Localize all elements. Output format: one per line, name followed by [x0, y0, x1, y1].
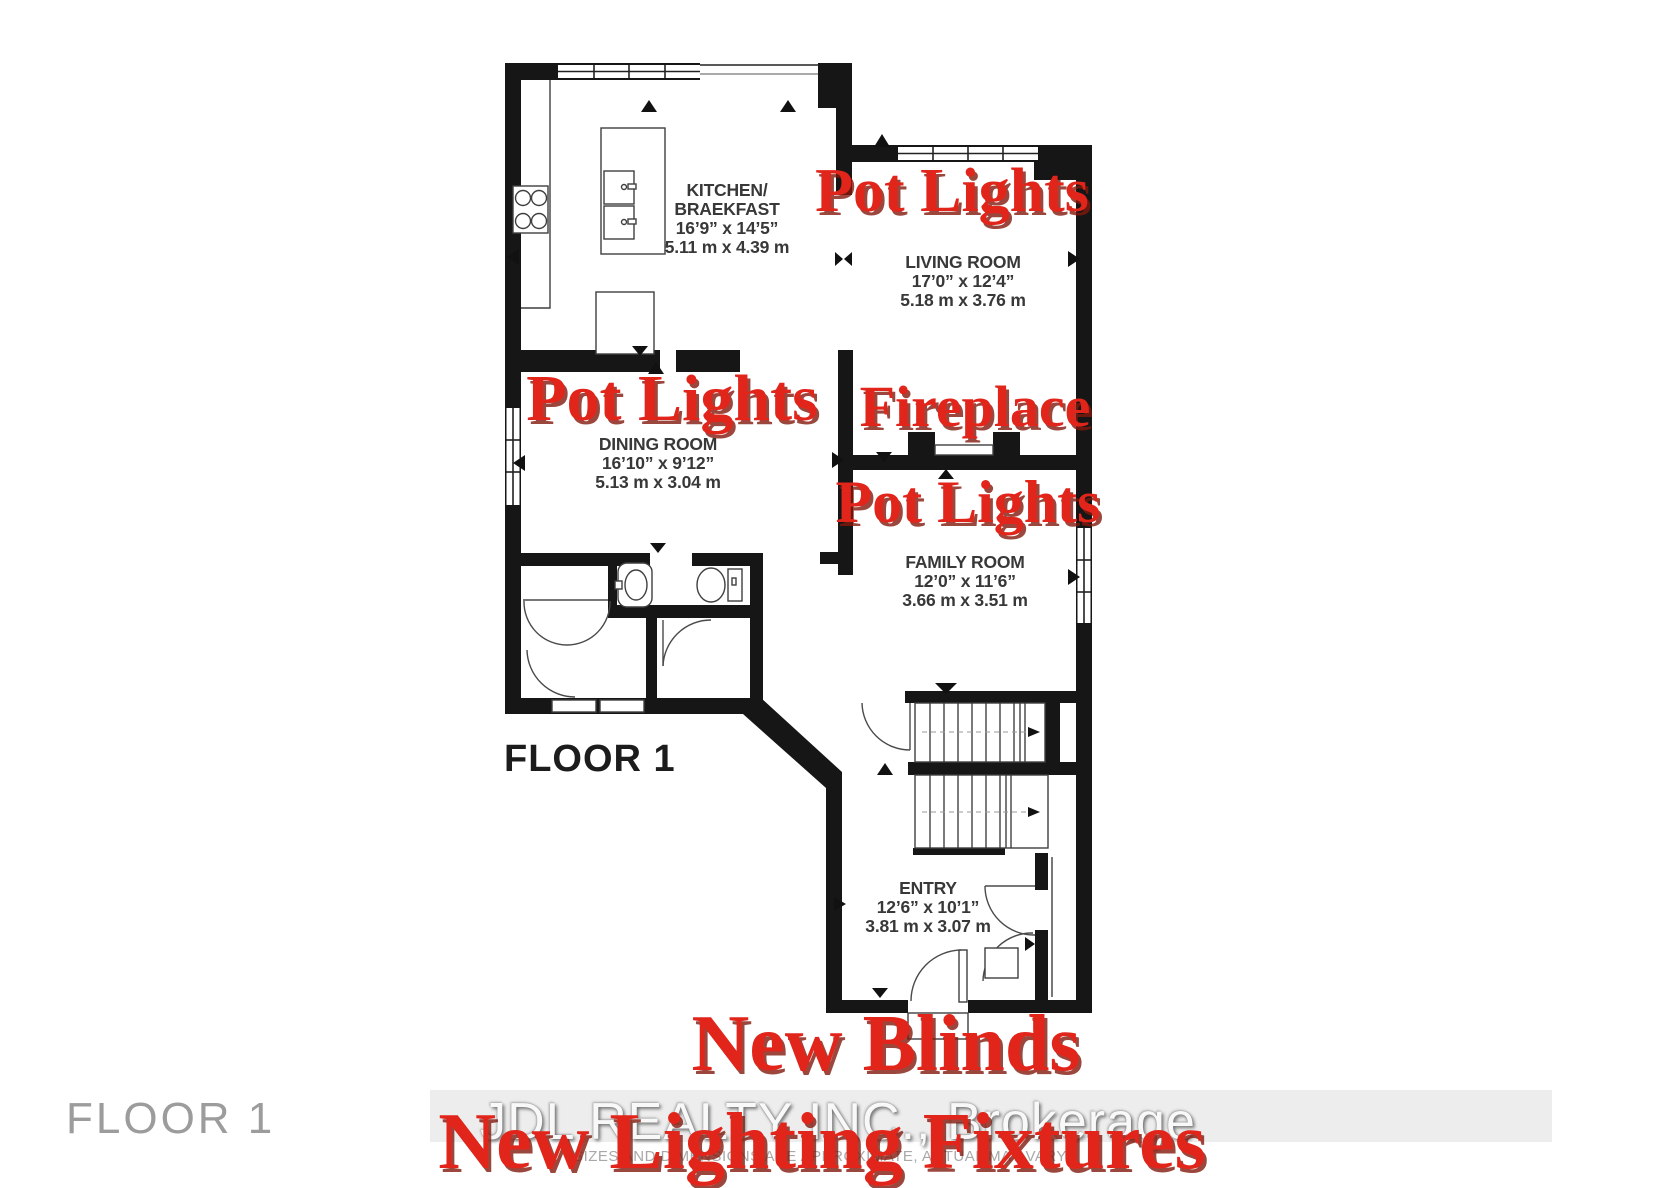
kitchen-metric: 5.11 m x 4.39 m [665, 237, 789, 257]
living-metric: 5.18 m x 3.76 m [900, 290, 1025, 310]
room-label-entry: ENTRY 12’6” x 10’1” 3.81 m x 3.07 m [865, 879, 990, 936]
room-label-dining: DINING ROOM 16’10” x 9’12” 5.13 m x 3.04… [595, 435, 720, 492]
entry-imperial: 12’6” x 10’1” [877, 897, 979, 917]
dining-name: DINING ROOM [599, 434, 717, 454]
direction-markers [507, 100, 1080, 998]
dining-imperial: 16’10” x 9’12” [602, 453, 714, 473]
annotation-pot-lights-living: Pot Lights [815, 160, 1089, 222]
kitchen-fixtures [513, 80, 665, 354]
annotation-new-blinds: New Blinds [692, 1004, 1081, 1084]
floor-label-corner: FLOOR 1 [66, 1094, 275, 1144]
kitchen-name-line2: BRAEKFAST [674, 199, 779, 219]
entry-metric: 3.81 m x 3.07 m [865, 916, 990, 936]
entry-name: ENTRY [899, 878, 957, 898]
floor-plan-page: KITCHEN/ BRAEKFAST 16’9” x 14’5” 5.11 m … [0, 0, 1680, 1188]
room-label-kitchen: KITCHEN/ BRAEKFAST 16’9” x 14’5” 5.11 m … [665, 181, 789, 257]
dining-metric: 5.13 m x 3.04 m [595, 472, 720, 492]
living-imperial: 17’0” x 12’4” [912, 271, 1014, 291]
room-label-family: FAMILY ROOM 12’0” x 11’6” 3.66 m x 3.51 … [902, 553, 1027, 610]
room-label-living: LIVING ROOM 17’0” x 12’4” 5.18 m x 3.76 … [900, 253, 1025, 310]
annotation-new-lighting-fixtures: New Lighting Fixtures [438, 1102, 1205, 1182]
annotation-pot-lights-dining: Pot Lights [526, 366, 818, 432]
annotation-fireplace: Fireplace [860, 378, 1091, 436]
annotation-pot-lights-family: Pot Lights [835, 472, 1100, 532]
bathroom-fixtures [615, 563, 742, 607]
family-imperial: 12’0” x 11’6” [914, 571, 1016, 591]
kitchen-imperial: 16’9” x 14’5” [676, 218, 778, 238]
family-metric: 3.66 m x 3.51 m [902, 590, 1027, 610]
living-name: LIVING ROOM [905, 252, 1020, 272]
kitchen-name-line1: KITCHEN/ [686, 180, 767, 200]
family-name: FAMILY ROOM [905, 552, 1024, 572]
floor-label-plan: FLOOR 1 [504, 738, 676, 781]
